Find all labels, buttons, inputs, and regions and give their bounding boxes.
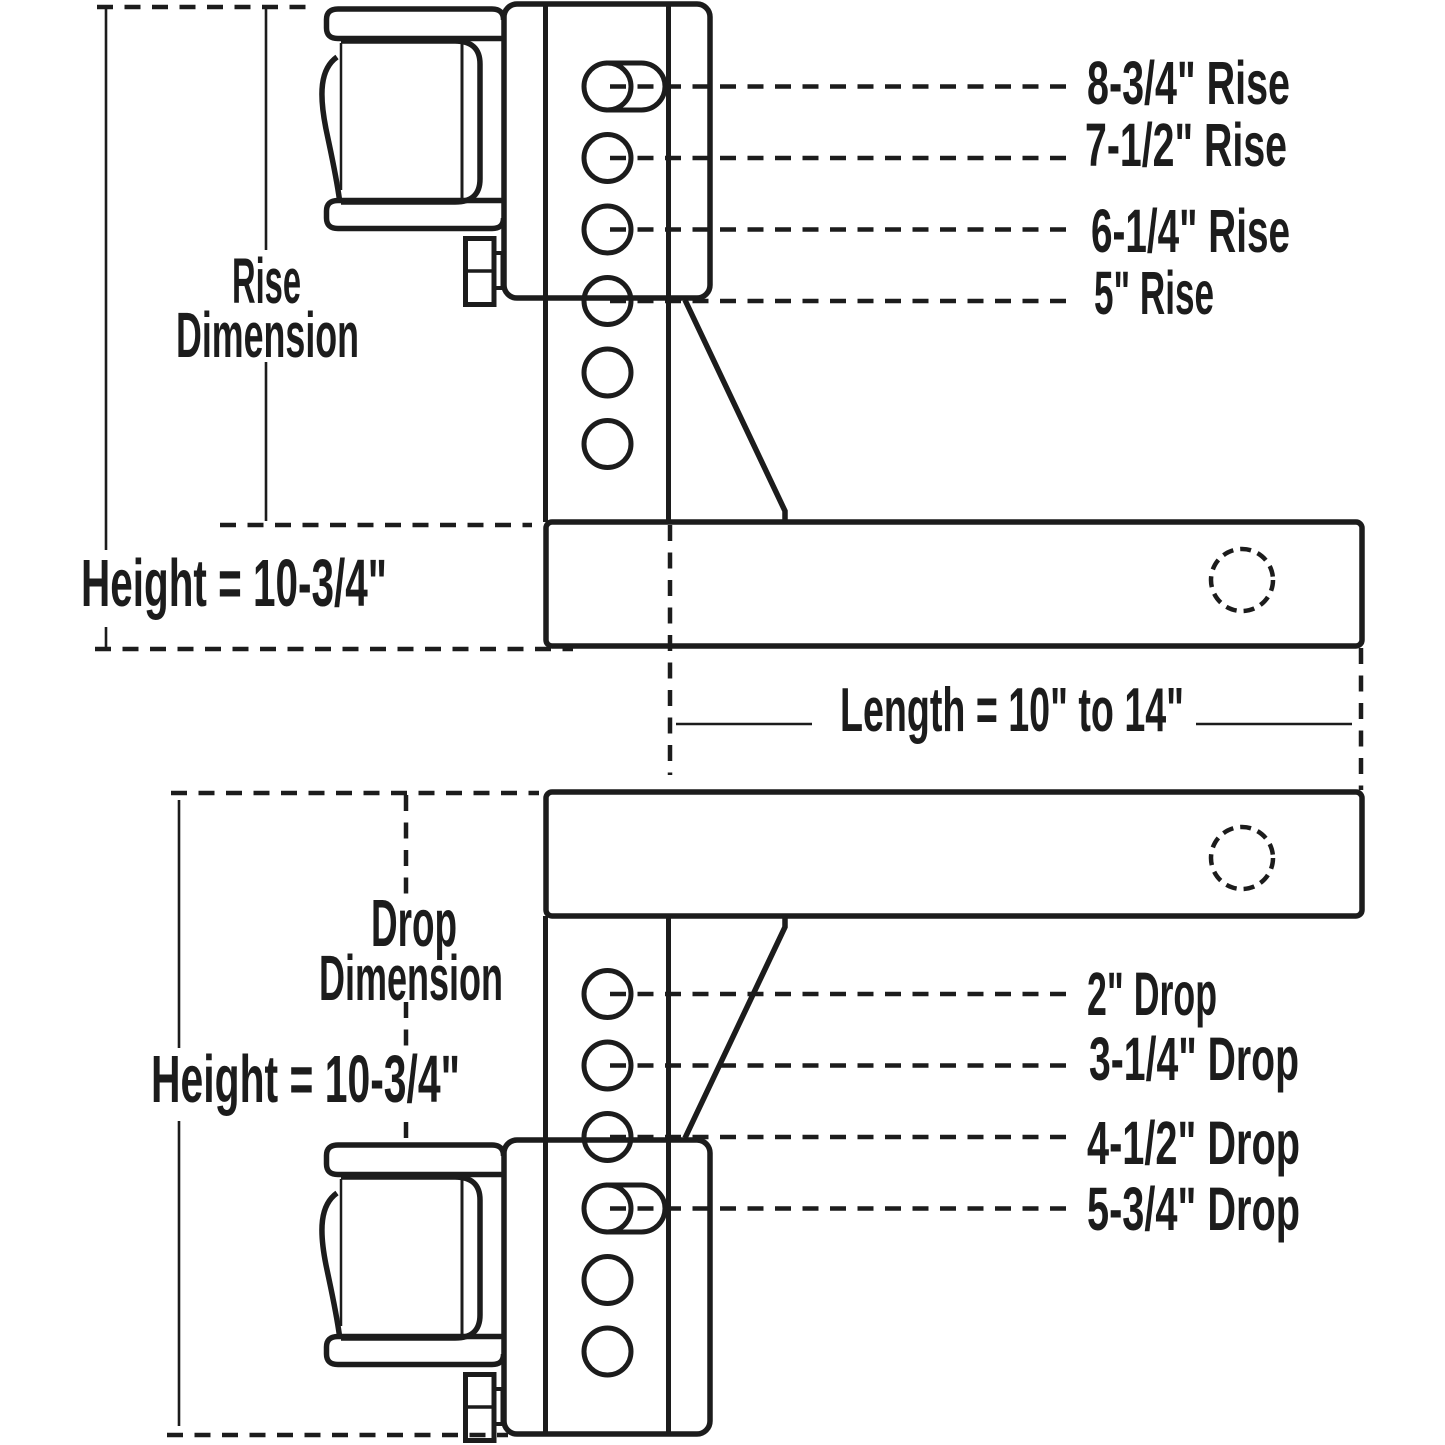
svg-text:Height = 10-3/4": Height = 10-3/4" xyxy=(151,1042,460,1117)
svg-text:Height = 10-3/4": Height = 10-3/4" xyxy=(81,546,387,621)
svg-text:2" Drop: 2" Drop xyxy=(1087,960,1217,1028)
svg-text:6-1/4" Rise: 6-1/4" Rise xyxy=(1091,197,1290,265)
svg-text:3-1/4" Drop: 3-1/4" Drop xyxy=(1089,1025,1299,1093)
svg-text:Dimension: Dimension xyxy=(176,299,359,371)
svg-text:7-1/2" Rise: 7-1/2" Rise xyxy=(1085,111,1287,179)
svg-text:4-1/2" Drop: 4-1/2" Drop xyxy=(1087,1109,1300,1177)
svg-text:8-3/4" Rise: 8-3/4" Rise xyxy=(1087,49,1290,117)
svg-text:5" Rise: 5" Rise xyxy=(1094,259,1214,327)
svg-text:Length = 10" to 14": Length = 10" to 14" xyxy=(840,676,1184,745)
svg-text:5-3/4" Drop: 5-3/4" Drop xyxy=(1087,1175,1300,1243)
svg-text:Dimension: Dimension xyxy=(319,942,503,1014)
